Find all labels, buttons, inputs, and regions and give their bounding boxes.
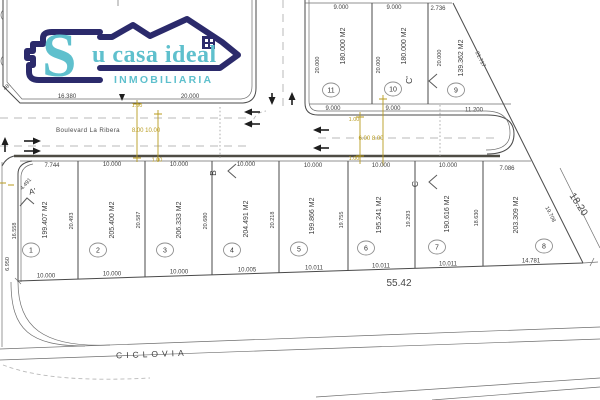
lot4-number: 4	[230, 248, 234, 255]
lot1-left-dim: 16.558	[12, 223, 18, 240]
logo-subtitle: INMOBILIARIA	[114, 74, 213, 86]
lot-8: 7.086 203.309 M2 19.708 14.781 8	[499, 166, 556, 265]
lane-w2: 1.00	[152, 158, 163, 164]
lot10-side: 20.000	[376, 57, 382, 74]
lot10-area: 180.000 M2	[401, 27, 408, 64]
section-c: C	[410, 181, 420, 187]
lot11-area: 180.000 M2	[340, 27, 347, 64]
lot3-front: 10.000	[170, 162, 189, 168]
lot8-side: 19.708	[543, 206, 556, 224]
section-extension-lines	[220, 105, 440, 158]
lot8-back: 14.781	[522, 259, 541, 265]
right-boundary-dim: 18.20	[567, 191, 590, 218]
section-b: B	[208, 170, 218, 176]
lot-10: 9.000 20.000 180.000 M2 9.000 10 C'	[376, 5, 414, 112]
lot11-back: 9.000	[325, 106, 341, 112]
lot-6: 10.000 195.241 M2 19.293 10.011 6	[358, 163, 413, 270]
lot7-back: 10.011	[439, 262, 458, 268]
lot3-number: 3	[163, 248, 167, 255]
total-width-dim: 55.42	[386, 278, 411, 289]
lot9-front: 2.736	[430, 6, 446, 12]
ciclovia-name: CICLOVIA	[116, 348, 188, 361]
lot1-back: 10.000	[37, 274, 56, 280]
lot10-front: 9.000	[386, 5, 402, 11]
site-plan-svg: S u casa ideal INMOBILIARIA 16.380 20.00…	[0, 0, 600, 400]
lot1-side: 20.493	[69, 213, 75, 230]
lot-3: 10.000 206.333 M2 20.680 10.000 3	[157, 162, 210, 276]
lot9-side: 20.000	[437, 50, 443, 67]
lot1-number: 1	[29, 248, 33, 255]
logo-title: u casa ideal	[92, 42, 217, 68]
lot3-side: 20.680	[203, 213, 209, 230]
lot7-side: 18.630	[474, 210, 480, 227]
lot2-front: 10.000	[103, 162, 122, 168]
lot-4: 10.000 204.491 M2 20.218 10.005 4 B	[208, 162, 276, 274]
lot7-number: 7	[435, 245, 439, 252]
lot3-back: 10.000	[170, 270, 189, 276]
boulevard-name: Boulevard La Ribera	[56, 127, 120, 134]
lot6-side: 19.293	[406, 211, 412, 228]
lot-9: 2.736 20.000 139.362 M2 21.717 11.200 9	[430, 6, 486, 114]
lot2-area: 205.400 M2	[109, 201, 116, 238]
traffic-arrows	[2, 92, 330, 155]
lot7-front: 10.000	[439, 163, 458, 169]
lot5-side: 19.755	[339, 212, 345, 229]
lot5-back: 10.011	[305, 266, 324, 272]
linework	[0, 0, 600, 400]
lane-e1: 1.00	[349, 117, 360, 123]
street-left-dim: 6.950	[5, 257, 11, 271]
lot9-number: 9	[454, 88, 458, 95]
lot8-number: 8	[542, 244, 546, 251]
nw-front-a: 16.380	[58, 94, 77, 100]
lot11-side: 20.000	[315, 57, 321, 74]
lot6-front: 10.000	[372, 163, 391, 169]
section-a: A'	[28, 186, 37, 196]
lot9-area: 139.362 M2	[458, 39, 465, 76]
nw-front-b: 20.000	[181, 94, 200, 100]
site-plan-page: S u casa ideal INMOBILIARIA 16.380 20.00…	[0, 0, 600, 400]
lot8-front: 7.086	[499, 166, 515, 172]
lot11-front: 9.000	[333, 5, 349, 11]
lot5-front: 10.000	[304, 163, 323, 169]
lot1-front: 7.744	[44, 163, 60, 169]
lot-2: 10.000 205.400 M2 20.587 10.000 2	[90, 162, 143, 278]
lot8-area: 203.309 M2	[513, 196, 520, 233]
lot4-side: 20.218	[270, 212, 276, 229]
lane-dims-west: 8.00 10.00	[132, 128, 161, 134]
lot2-back: 10.000	[103, 272, 122, 278]
logo-letter-s: S	[42, 22, 76, 90]
lot6-area: 195.241 M2	[376, 196, 383, 233]
lot2-side: 20.587	[136, 212, 142, 229]
lot1-area: 199.407 M2	[42, 201, 49, 238]
lot6-number: 6	[364, 246, 368, 253]
lot5-area: 199.866 M2	[309, 197, 316, 234]
lot10-back: 9.000	[385, 106, 401, 112]
lot4-area: 204.491 M2	[243, 200, 250, 237]
lot7-area: 190.616 M2	[444, 195, 451, 232]
lot-7: 10.000 190.616 M2 18.630 10.011 7 C	[410, 163, 480, 268]
logo: S u casa ideal INMOBILIARIA	[27, 19, 238, 90]
lot2-number: 2	[96, 248, 100, 255]
lot4-back: 10.005	[238, 268, 257, 274]
lot6-back: 10.011	[372, 264, 391, 270]
lot-5: 10.000 199.866 M2 19.755 10.011 5	[291, 163, 346, 272]
lane-dims-east: 6.00 8.00	[358, 136, 384, 142]
lot-11: 9.000 20.000 180.000 M2 9.000 11	[315, 5, 349, 112]
lot11-number: 11	[327, 88, 334, 95]
nw-chamfer-dim: 48.	[2, 82, 12, 92]
ciclovia-lines	[0, 282, 600, 400]
section-c-prime: C'	[404, 76, 414, 84]
lane-e2: 1.00	[349, 156, 360, 162]
lot9-back: 11.200	[465, 108, 484, 114]
lot3-area: 206.333 M2	[176, 201, 183, 238]
lot5-number: 5	[297, 247, 301, 254]
lot10-number: 10	[389, 87, 397, 94]
lane-w1: 1.00	[132, 103, 143, 109]
lot9-diagonal: 21.717	[474, 51, 487, 69]
lot4-front: 10.000	[237, 162, 256, 168]
